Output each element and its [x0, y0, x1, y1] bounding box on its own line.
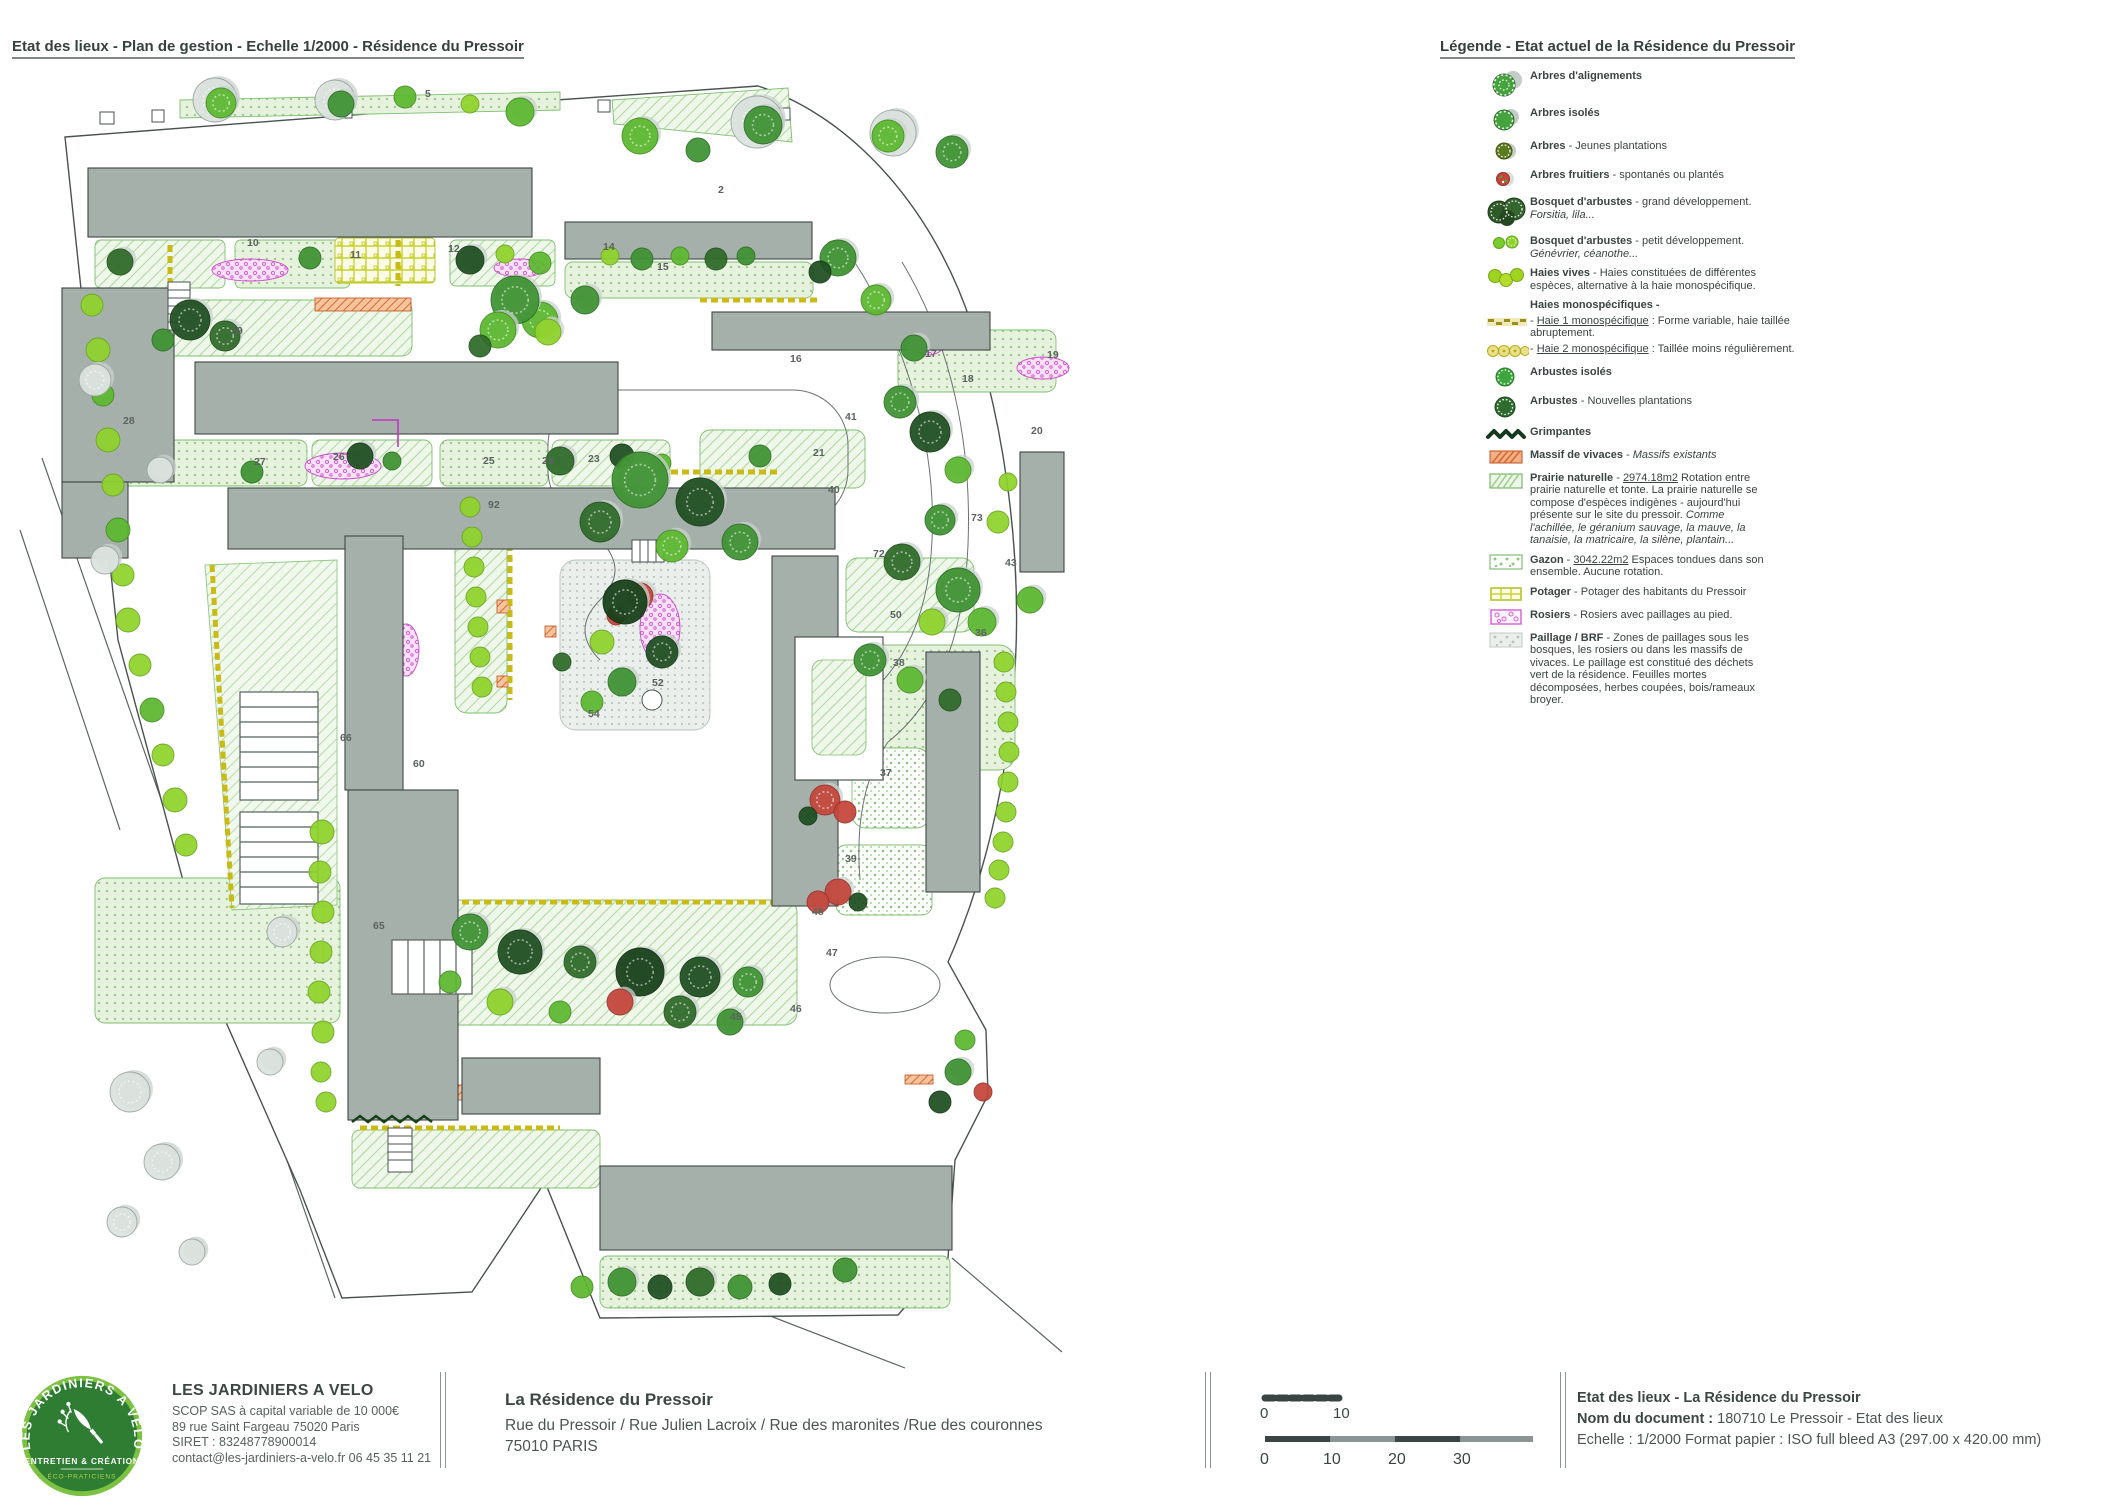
legend-item-text: Haies vives - Haies constituées de diffé… [1530, 267, 1756, 292]
tree [312, 901, 334, 923]
tree [529, 252, 551, 274]
zone-label: 11 [350, 249, 361, 261]
company-line: SCOP SAS à capital variable de 10 000€ [172, 1404, 431, 1420]
legend-item: - Haie 1 monospécifique : Forme variable… [1484, 315, 1914, 340]
tree [686, 138, 710, 162]
tree [460, 497, 480, 517]
tree [929, 1091, 951, 1113]
tree [86, 338, 110, 362]
legend-item: Arbres fruitiers - spontanés ou plantés [1484, 169, 1914, 189]
tree [939, 689, 961, 711]
tree [728, 1275, 752, 1299]
tree [834, 801, 856, 823]
zone-label: 37 [880, 767, 892, 779]
arbuste-new-icon [1484, 395, 1530, 419]
legend-item: Gazon - 3042.22m2 Espaces tondues dans s… [1484, 554, 1914, 579]
scale-bar-40m [1265, 1436, 1533, 1442]
tree [603, 580, 647, 624]
tree [919, 609, 945, 635]
tree [996, 682, 1016, 702]
tree [676, 478, 724, 526]
climber-icon [1484, 426, 1530, 442]
tree [809, 261, 831, 283]
zone-label: 21 [813, 447, 825, 459]
tree [861, 285, 891, 315]
tree [498, 930, 542, 974]
zone-label: 26 [333, 451, 345, 463]
tree [464, 557, 484, 577]
tree [311, 1062, 331, 1082]
zone-label: 41 [845, 411, 857, 423]
tree [466, 587, 486, 607]
zone-label: 65 [373, 920, 385, 932]
legend-item: Arbres d'alignements [1484, 70, 1914, 100]
legend-item-text: Arbres isolés [1530, 107, 1600, 133]
zone-label: 18 [962, 373, 974, 385]
tree [549, 1001, 571, 1023]
tree [607, 989, 633, 1015]
legend-item-text: Bosquet d'arbustes - grand développement… [1530, 196, 1752, 228]
tree [631, 248, 653, 270]
legend-item-text: - Haie 1 monospécifique : Forme variable… [1530, 315, 1790, 340]
project-title: La Résidence du Pressoir [505, 1390, 1043, 1410]
tree [769, 1273, 791, 1295]
tree [884, 386, 916, 418]
company-logo: LES JARDINIERS A VÉLO ENTRETIEN & CRÉATI… [16, 1372, 148, 1500]
tree [328, 91, 354, 117]
docinfo-document-line: Nom du document : 180710 Le Pressoir - E… [1577, 1409, 2041, 1430]
tree [206, 88, 236, 118]
zone-label: 5 [425, 88, 431, 100]
perennial-icon [1484, 449, 1530, 465]
tree [987, 511, 1009, 533]
tree [993, 832, 1013, 852]
company-block: LES JARDINIERS A VELO SCOP SAS à capital… [172, 1382, 431, 1466]
legend-item-text: Bosquet d'arbustes - petit développement… [1530, 235, 1744, 260]
tree [622, 118, 658, 154]
tree [469, 335, 491, 357]
logo-sub-text: ÉCO-PRATICIENS [47, 1472, 116, 1481]
zone-label: 66 [340, 732, 352, 744]
docinfo-scale-line: Echelle : 1/2000 Format papier : ISO ful… [1577, 1430, 2041, 1451]
scale-label: 10 [1333, 1405, 1350, 1422]
tree [945, 1059, 971, 1085]
legend-item: Rosiers - Rosiers avec paillages au pied… [1484, 609, 1914, 625]
scale-bars: 010 0102030 [1245, 1382, 1565, 1482]
tree [107, 1207, 137, 1237]
zone-label: 20 [1031, 425, 1043, 437]
tree [994, 652, 1014, 672]
tree [671, 247, 689, 265]
tree [140, 698, 164, 722]
tree [580, 502, 620, 542]
zone-label: 24 [542, 455, 554, 467]
project-address: Rue du Pressoir / Rue Julien Lacroix / R… [505, 1415, 1043, 1436]
tree [999, 742, 1019, 762]
zone-label: 23 [588, 453, 600, 465]
zone-label: 50 [890, 609, 902, 621]
zone-label: 48 [812, 906, 824, 918]
tree [267, 917, 297, 947]
legend-item: Arbustes isolés [1484, 366, 1914, 388]
tree-young-icon [1484, 140, 1530, 162]
zone-label: 28 [123, 415, 135, 427]
legend-item-text: Arbustes - Nouvelles plantations [1530, 395, 1692, 419]
tree [439, 971, 461, 993]
zone-label: 14 [603, 241, 615, 253]
tree [945, 457, 971, 483]
courtyard-green [812, 660, 866, 755]
docinfo-block: Etat des lieux - La Résidence du Pressoi… [1577, 1388, 2041, 1451]
legend-item: Arbres isolés [1484, 107, 1914, 133]
tree [799, 807, 817, 825]
tree [394, 86, 416, 108]
footer-divider-1 [440, 1372, 446, 1468]
tree [749, 445, 771, 467]
tree [102, 474, 124, 496]
scale-label: 0 [1260, 1451, 1269, 1468]
zone-label: 19 [1047, 349, 1059, 361]
zone-label: 43 [1005, 557, 1017, 569]
tree [705, 248, 727, 270]
tree [884, 544, 920, 580]
legend-item-text: Arbustes isolés [1530, 366, 1612, 388]
zone-label: 15 [657, 261, 669, 273]
legend-item-text: Haies monospécifiques - [1530, 299, 1660, 312]
tree [316, 1092, 336, 1112]
legend-item: Arbres - Jeunes plantations [1484, 140, 1914, 162]
tree [179, 1239, 205, 1265]
scale-label: 0 [1260, 1405, 1268, 1422]
shrub-small-icon [1484, 235, 1530, 260]
tree [110, 1072, 150, 1112]
tree [91, 546, 119, 574]
tree [608, 668, 636, 696]
footer-divider-2 [1205, 1372, 1211, 1468]
tree [107, 249, 133, 275]
zone-label: 2 [718, 184, 724, 196]
tree [998, 772, 1018, 792]
no-icon [1484, 299, 1530, 312]
project-block: La Résidence du Pressoir Rue du Pressoir… [505, 1390, 1043, 1457]
arbuste-isolated-icon [1484, 366, 1530, 388]
zone-label: 27 [254, 456, 266, 468]
legend-item-text: Grimpantes [1530, 426, 1591, 442]
tree [955, 1030, 975, 1050]
tree [147, 457, 173, 483]
legend-item: - Haie 2 monospécifique : Taillée moins … [1484, 343, 1914, 359]
tree [116, 608, 140, 632]
company-line: 89 rue Saint Fargeau 75020 Paris [172, 1420, 431, 1436]
legend-panel: Arbres d'alignementsArbres isolésArbres … [1484, 70, 1914, 714]
legend-item: Prairie naturelle - 2974.18m2 Rotation e… [1484, 472, 1914, 547]
tree [999, 473, 1017, 491]
zone-label: 54 [588, 708, 600, 720]
legend-item-text: Arbres - Jeunes plantations [1530, 140, 1667, 162]
tree [383, 452, 401, 470]
legend-item-text: Paillage / BRF - Zones de paillages sous… [1530, 632, 1755, 707]
scale-label: 20 [1388, 1451, 1406, 1468]
zone-label: 52 [652, 677, 664, 689]
company-line: SIRET : 83248778900014 [172, 1435, 431, 1451]
tree [79, 364, 111, 396]
logo-band-text: ENTRETIEN & CRÉATION [24, 1456, 139, 1466]
tree [347, 443, 373, 469]
tree [144, 1144, 180, 1180]
legend-title: Légende - Etat actuel de la Résidence du… [1440, 38, 1795, 59]
zone-label: 29 [231, 325, 243, 337]
tree [470, 647, 490, 667]
tree [106, 518, 130, 542]
zone-label: 46 [790, 1003, 802, 1015]
tree [462, 527, 482, 547]
zone-label: 12 [448, 243, 460, 255]
tree [452, 914, 488, 950]
tree [310, 941, 332, 963]
tree [152, 329, 174, 351]
tree [170, 300, 210, 340]
tree [461, 95, 479, 113]
docinfo-title: Etat des lieux - La Résidence du Pressoi… [1577, 1388, 2041, 1409]
hedge-mixed-icon [1484, 267, 1530, 292]
tree [936, 568, 980, 612]
tree [309, 861, 331, 883]
project-city: 75010 PARIS [505, 1436, 1043, 1457]
tree [612, 452, 668, 508]
scale-label: 30 [1453, 1451, 1471, 1468]
tree [163, 788, 187, 812]
zone-label: 25 [483, 455, 495, 467]
tree [571, 1276, 593, 1298]
site-plan-map: 5292101112141516171819202123242526272829… [0, 0, 1125, 1380]
gazon-icon [1484, 554, 1530, 579]
legend-item: Paillage / BRF - Zones de paillages sous… [1484, 632, 1914, 707]
zone-label: 10 [247, 237, 259, 249]
tree [833, 1258, 857, 1282]
zone-label: 36 [975, 627, 987, 639]
tree [744, 106, 782, 144]
tree [590, 630, 614, 654]
rosiers-icon [1484, 609, 1530, 625]
tree [553, 653, 571, 671]
legend-item: Bosquet d'arbustes - petit développement… [1484, 235, 1914, 260]
tree [656, 530, 688, 562]
tree [872, 120, 904, 152]
tree [487, 989, 513, 1015]
tree [936, 136, 968, 168]
potager-icon [1484, 586, 1530, 602]
paillage-icon [1484, 632, 1530, 707]
tree-isolated-icon [1484, 107, 1530, 133]
company-name: LES JARDINIERS A VELO [172, 1382, 431, 1400]
tree-alignment-icon [1484, 70, 1530, 100]
hedge-mono2-icon [1484, 343, 1530, 359]
legend-item-text: Potager - Potager des habitants du Press… [1530, 586, 1746, 602]
tree [925, 505, 955, 535]
prairie-icon [1484, 472, 1530, 547]
tree [901, 335, 927, 361]
zone-label: 16 [790, 353, 802, 365]
legend-item-text: - Haie 2 monospécifique : Taillée moins … [1530, 343, 1795, 359]
tree [664, 996, 696, 1028]
legend-item: Haies vives - Haies constituées de diffé… [1484, 267, 1914, 292]
tree [310, 820, 334, 844]
legend-item-text: Rosiers - Rosiers avec paillages au pied… [1530, 609, 1732, 625]
legend-item: Massif de vivaces - Massifs existants [1484, 449, 1914, 465]
legend-item: Arbustes - Nouvelles plantations [1484, 395, 1914, 419]
tree [472, 677, 492, 697]
tree [571, 286, 599, 314]
tree [985, 888, 1005, 908]
tree [1017, 587, 1043, 613]
tree [680, 957, 720, 997]
legend-item: Bosquet d'arbustes - grand développement… [1484, 196, 1914, 228]
legend-item: Grimpantes [1484, 426, 1914, 442]
scale-label: 10 [1323, 1451, 1341, 1468]
tree [854, 644, 886, 676]
tree [175, 834, 197, 856]
tree [257, 1049, 283, 1075]
tree [996, 802, 1016, 822]
tree [299, 247, 321, 269]
tree [81, 294, 103, 316]
company-contact-line[interactable]: contact@les-jardiniers-a-velo.fr 06 45 3… [172, 1451, 431, 1467]
zone-label: 45 [730, 1011, 742, 1023]
tree [96, 428, 120, 452]
tree [129, 654, 151, 676]
tree [686, 1268, 714, 1296]
zone-label: 17 [925, 348, 937, 360]
tree [974, 1083, 992, 1101]
tree [989, 860, 1009, 880]
zone-label: 73 [971, 512, 983, 524]
tree [468, 617, 488, 637]
legend-item: Potager - Potager des habitants du Press… [1484, 586, 1914, 602]
tree [456, 246, 484, 274]
tree [646, 636, 678, 668]
tree [535, 319, 561, 345]
tree [897, 667, 923, 693]
tree [648, 1275, 672, 1299]
zone-label: 47 [826, 947, 838, 959]
legend-item-text: Arbres d'alignements [1530, 70, 1642, 100]
tree [910, 412, 950, 452]
tree [608, 1268, 636, 1296]
zone-label: 92 [488, 499, 500, 511]
tree [152, 744, 174, 766]
legend-item-text: Massif de vivaces - Massifs existants [1530, 449, 1716, 465]
zone-label: 40 [828, 484, 840, 496]
legend-item-text: Gazon - 3042.22m2 Espaces tondues dans s… [1530, 554, 1764, 579]
tree [722, 524, 758, 560]
tree [737, 247, 755, 265]
tree [998, 712, 1018, 732]
zone-label: 39 [845, 853, 857, 865]
tree [496, 245, 514, 263]
zone-label: 60 [413, 758, 425, 770]
tree [308, 981, 330, 1003]
tree [564, 946, 596, 978]
legend-item-text: Arbres fruitiers - spontanés ou plantés [1530, 169, 1724, 189]
tree [312, 1021, 334, 1043]
tree-fruit-icon [1484, 169, 1530, 189]
shrub-large-icon [1484, 196, 1530, 228]
tree [849, 893, 867, 911]
zone-label: 72 [873, 548, 885, 560]
tree [506, 98, 534, 126]
legend-item: Haies monospécifiques - [1484, 299, 1914, 312]
legend-item-text: Prairie naturelle - 2974.18m2 Rotation e… [1530, 472, 1757, 547]
zone-label: 38 [893, 657, 905, 669]
hedge-mono1-icon [1484, 315, 1530, 340]
tree [733, 967, 763, 997]
